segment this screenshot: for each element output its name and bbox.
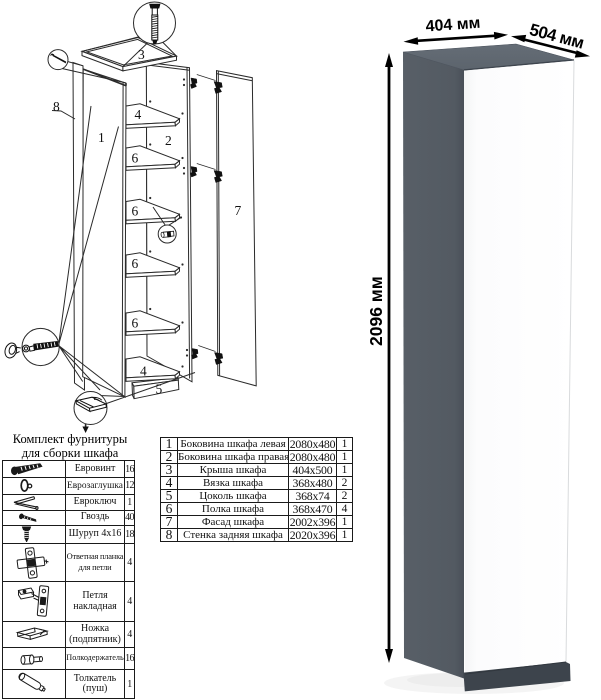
- svg-text:6: 6: [132, 256, 139, 271]
- svg-text:404 мм: 404 мм: [425, 15, 481, 36]
- svg-text:4: 4: [135, 107, 142, 122]
- svg-text:3: 3: [138, 47, 145, 62]
- svg-text:4: 4: [140, 364, 147, 379]
- svg-text:8: 8: [53, 99, 60, 114]
- svg-text:1: 1: [98, 130, 105, 145]
- svg-text:5: 5: [156, 382, 163, 397]
- svg-text:2096 мм: 2096 мм: [366, 276, 386, 346]
- svg-text:7: 7: [235, 203, 242, 218]
- svg-text:2: 2: [165, 133, 172, 148]
- svg-text:6: 6: [132, 316, 139, 331]
- svg-text:6: 6: [132, 151, 139, 166]
- svg-text:6: 6: [132, 204, 139, 219]
